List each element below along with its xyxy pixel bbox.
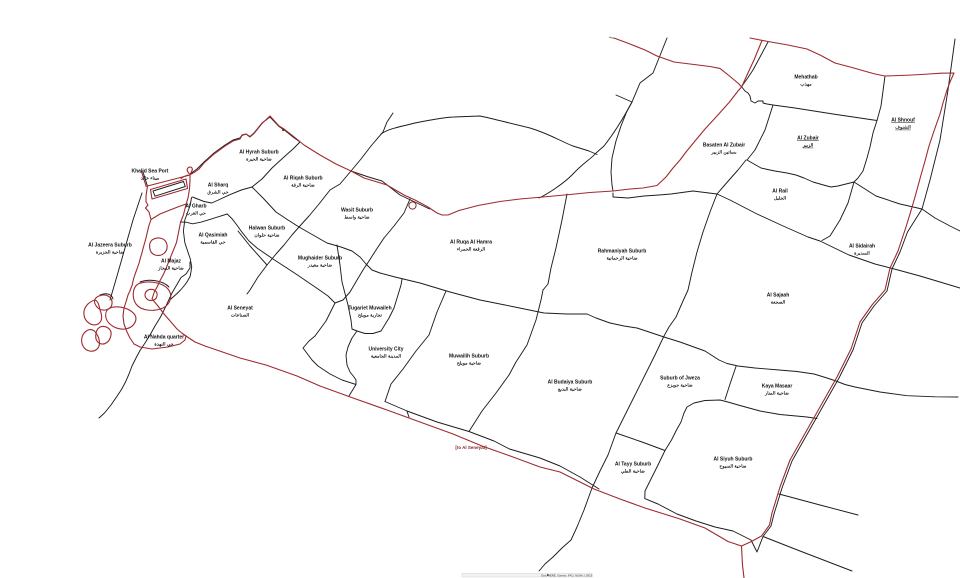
svg-text:Al Ruqa Al Hamra: Al Ruqa Al Hamra (450, 240, 492, 246)
svg-text:Al Shnouf: Al Shnouf (891, 118, 915, 124)
svg-text:Al Seneyat: Al Seneyat (227, 306, 253, 312)
svg-text:Al Budaiya Suburb: Al Budaiya Suburb (548, 380, 593, 386)
svg-text:Wasit Suburb: Wasit Suburb (341, 208, 373, 214)
svg-text:Al Sidairah: Al Sidairah (849, 244, 875, 250)
svg-text:Al Gharb: Al Gharb (185, 204, 206, 210)
svg-text:Al Siyuh Suburb: Al Siyuh Suburb (714, 457, 753, 463)
svg-text:Halwan Suburb: Halwan Suburb (249, 226, 285, 232)
svg-text:Al Rail: Al Rail (772, 189, 788, 195)
svg-text:Al Sharq: Al Sharq (208, 183, 229, 189)
svg-text:Al Majaz: Al Majaz (161, 259, 182, 265)
svg-text:Al Qasimiah: Al Qasimiah (199, 233, 228, 239)
svg-text:Al Hyrah Suburb: Al Hyrah Suburb (239, 150, 278, 156)
svg-text:Muwailih Suburb: Muwailih Suburb (449, 354, 489, 360)
svg-text:Suburb of Jweza: Suburb of Jweza (660, 376, 700, 382)
svg-text:Esri, HERE, Garmin, FAO, NOAA,: Esri, HERE, Garmin, FAO, NOAA, USGS (542, 573, 593, 577)
svg-text:Mughaider Suburb: Mughaider Suburb (298, 256, 342, 262)
svg-text:الصناعات: الصناعات (231, 313, 250, 318)
svg-text:Al Tayy Suburb: Al Tayy Suburb (615, 462, 651, 468)
svg-text:University City: University City (368, 347, 403, 353)
svg-text:Kaya Masaar: Kaya Masaar (762, 384, 793, 390)
svg-text:Al Sajaah: Al Sajaah (767, 293, 790, 299)
svg-text:Rahmaniyah Suburb: Rahmaniyah Suburb (598, 249, 647, 255)
svg-text:Khalid Sea Port: Khalid Sea Port (132, 169, 169, 175)
svg-text:Al Nahda quarter: Al Nahda quarter (144, 335, 184, 341)
svg-text:Tugariet Muwaileh: Tugariet Muwaileh (348, 306, 391, 312)
svg-text:Al Jazeera Suburb: Al Jazeera Suburb (88, 243, 132, 249)
svg-text:Al Zubair: Al Zubair (797, 136, 819, 142)
svg-text:Basaten Al Zubair: Basaten Al Zubair (703, 143, 745, 149)
svg-text:Al Riqah Suburb: Al Riqah Suburb (283, 176, 322, 182)
svg-text:Mehathab: Mehathab (794, 75, 817, 81)
svg-text:[to Al Seneyat]: [to Al Seneyat] (455, 445, 487, 450)
